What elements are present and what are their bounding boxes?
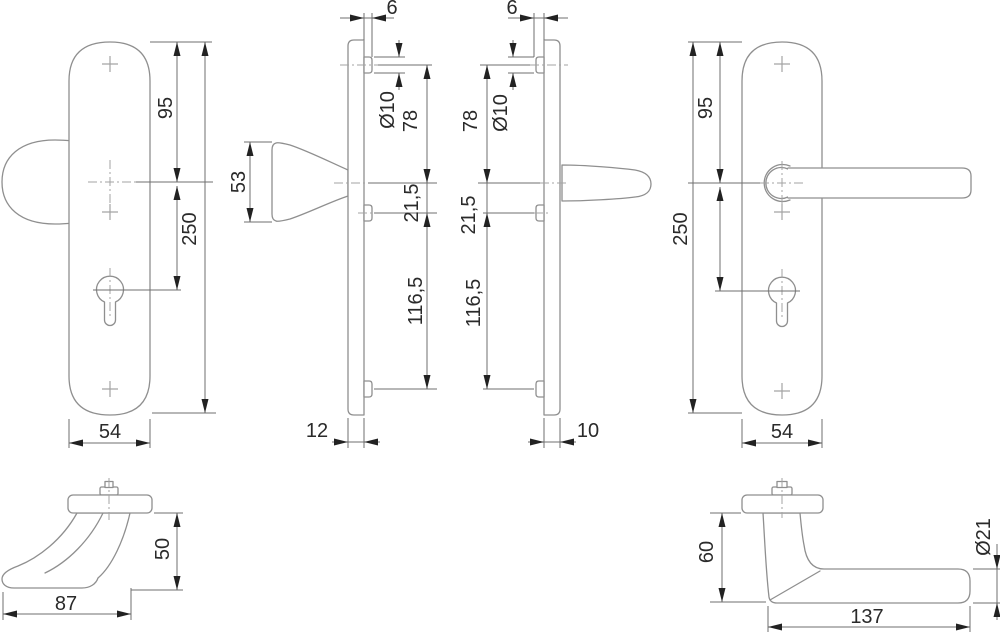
dim-label-54: 54: [99, 421, 121, 443]
dim-label-6: 6: [506, 0, 517, 19]
dim-label-250: 250: [179, 212, 201, 245]
dim-label-53: 53: [228, 171, 250, 193]
screw-boss-bottom: [364, 381, 372, 397]
dim-label-dia10: Ø10: [490, 94, 512, 132]
dim-label-21-5: 21,5: [458, 196, 480, 235]
drawing-svg: 95 250 54: [0, 0, 1000, 632]
plate-profile: [348, 40, 364, 415]
dim-label-95: 95: [155, 97, 177, 119]
dim-label-12: 12: [306, 420, 328, 442]
dim-label-10: 10: [577, 420, 599, 442]
plate-outline: [69, 42, 150, 415]
dim-label-137: 137: [850, 606, 883, 628]
dim-label-54: 54: [771, 421, 793, 443]
dim-label-60: 60: [696, 541, 718, 563]
plate-outline: [742, 42, 822, 415]
dim-label-dia10: Ø10: [377, 91, 399, 129]
technical-drawing-canvas: 95 250 54: [0, 0, 1000, 632]
plate-profile: [544, 40, 560, 415]
dim-label-78: 78: [400, 110, 422, 132]
cap: [68, 495, 152, 513]
dim-label-78: 78: [460, 110, 482, 132]
lever-bar: [788, 168, 971, 198]
dim-label-21-5: 21,5: [401, 184, 423, 223]
dim-label-6: 6: [386, 0, 397, 19]
dim-label-50: 50: [152, 538, 174, 560]
dim-label-116-5: 116,5: [405, 277, 427, 326]
dim-label-250: 250: [670, 212, 692, 245]
lever-side-outline: [562, 165, 651, 201]
dim-label-dia21: Ø21: [973, 518, 995, 556]
screw-boss-bottom: [536, 381, 544, 397]
dim-label-116-5: 116,5: [463, 279, 485, 328]
dim-label-87: 87: [55, 593, 77, 615]
dim-label-95: 95: [695, 97, 717, 119]
